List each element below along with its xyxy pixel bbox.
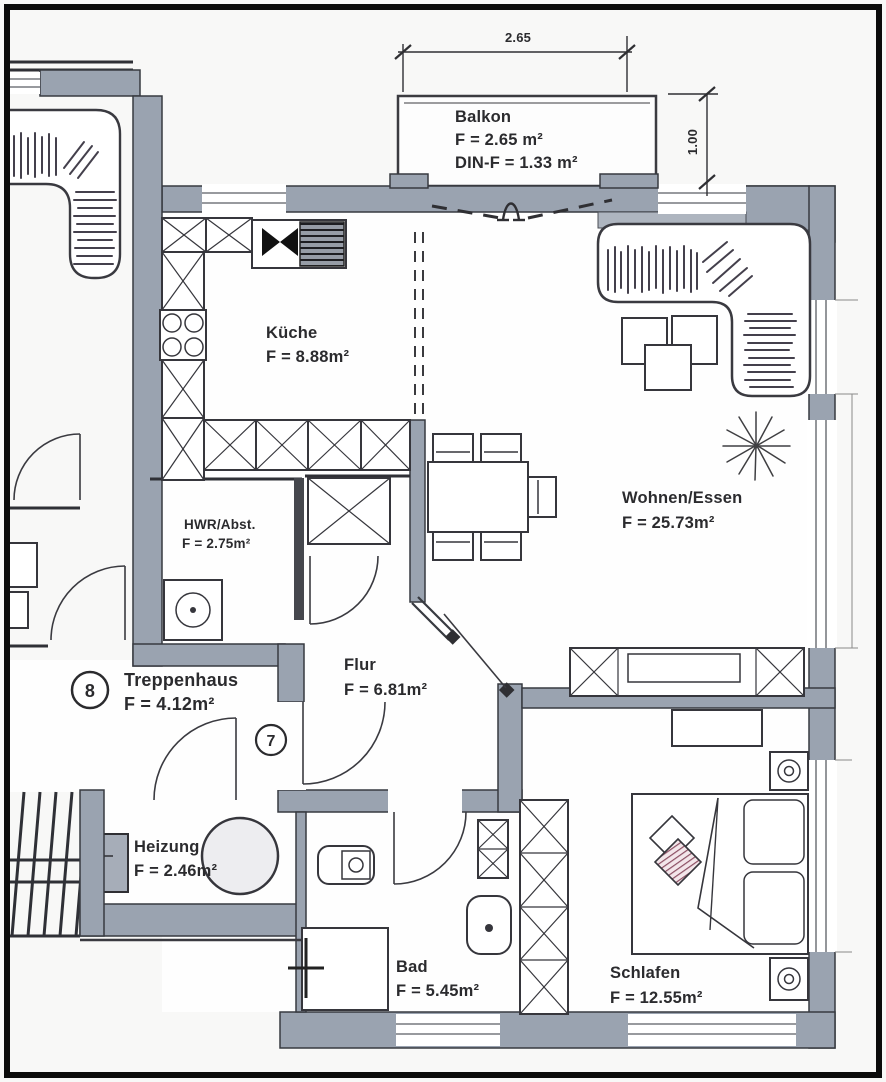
floor-plan-page: 2.65 1.00 8 7 Balkon F = 2.65 m² DIN-F =… (0, 0, 886, 1082)
dim-balcony-depth: 1.00 (685, 129, 700, 155)
unit-marker-7: 7 (256, 725, 286, 755)
nightstand-top-icon (770, 752, 808, 790)
living-window-upper (807, 300, 837, 394)
label-heizung-area: F = 2.46m² (134, 862, 217, 880)
bath-window (396, 1014, 500, 1046)
sink-unit-icon (252, 220, 346, 268)
label-wohnen-name: Wohnen/Essen (622, 489, 742, 507)
washbasin-icon (467, 896, 511, 954)
label-bad-area: F = 5.45m² (396, 982, 479, 1000)
toilet-icon (318, 846, 374, 884)
kitchen-window (202, 184, 286, 214)
sideboard-icon (570, 648, 804, 696)
label-flur-area: F = 6.81m² (344, 681, 427, 699)
label-treppenhaus-area: F = 4.12m² (124, 694, 215, 714)
unit-marker-7-label: 7 (266, 733, 275, 750)
nightstand-bottom-icon (770, 958, 808, 1000)
washing-machine-icon (164, 580, 222, 640)
wardrobe-icon (520, 800, 568, 1014)
dresser-icon (672, 710, 762, 746)
label-flur-name: Flur (344, 656, 376, 674)
label-kueche-area: F = 8.88m² (266, 348, 349, 366)
label-kueche-name: Küche (266, 324, 317, 342)
bedroom-window-south (628, 1014, 796, 1046)
label-schlafen-area: F = 12.55m² (610, 989, 703, 1007)
label-heizung-name: Heizung (134, 838, 200, 856)
bed-icon (632, 794, 808, 954)
living-window-lower (807, 420, 837, 648)
label-bad-name: Bad (396, 958, 428, 976)
label-balkon-din: DIN-F = 1.33 m² (455, 154, 578, 172)
top-right-window (658, 184, 746, 214)
label-wohnen-area: F = 25.73m² (622, 514, 715, 532)
floor-plan-drawing: 2.65 1.00 8 7 Balkon F = 2.65 m² DIN-F =… (0, 0, 886, 1082)
dim-balcony-width: 2.65 (505, 30, 531, 45)
stove-icon (160, 310, 206, 360)
bath-cabinet-icon (478, 820, 508, 878)
unit-marker-8-label: 8 (85, 681, 95, 701)
unit-marker-8: 8 (72, 672, 108, 708)
bedroom-window (807, 760, 837, 952)
label-balkon-area: F = 2.65 m² (455, 131, 543, 149)
label-hwr-name: HWR/Abst. (184, 517, 256, 532)
label-schlafen-name: Schlafen (610, 964, 680, 982)
label-treppenhaus-name: Treppenhaus (124, 670, 238, 690)
shower-icon (288, 928, 388, 1010)
heating-tank-icon (202, 818, 278, 894)
label-balkon-name: Balkon (455, 108, 511, 126)
label-hwr-area: F = 2.75m² (182, 536, 251, 551)
